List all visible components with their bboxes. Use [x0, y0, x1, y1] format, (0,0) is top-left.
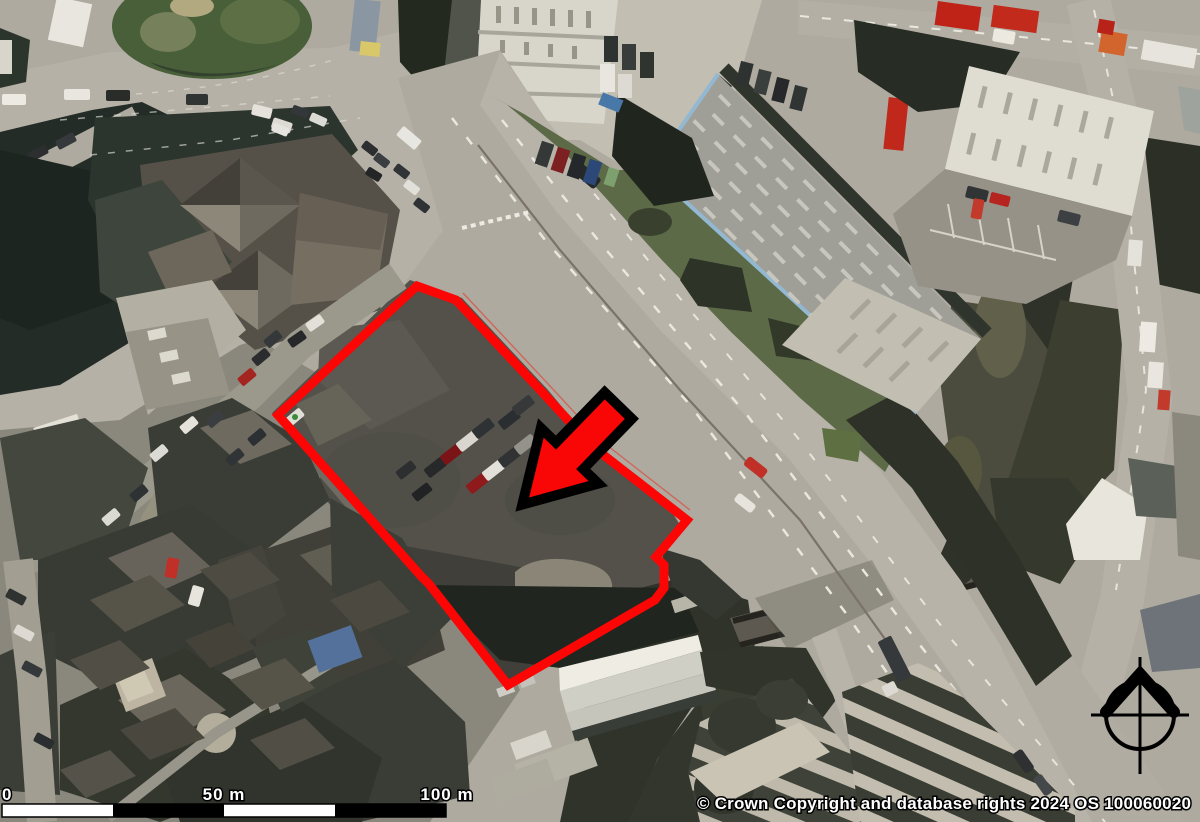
svg-text:© Crown Copyright and database: © Crown Copyright and database rights 20…	[697, 794, 1191, 813]
svg-text:50 m: 50 m	[203, 785, 246, 804]
svg-text:0: 0	[2, 785, 12, 804]
svg-text:100 m: 100 m	[420, 785, 473, 804]
